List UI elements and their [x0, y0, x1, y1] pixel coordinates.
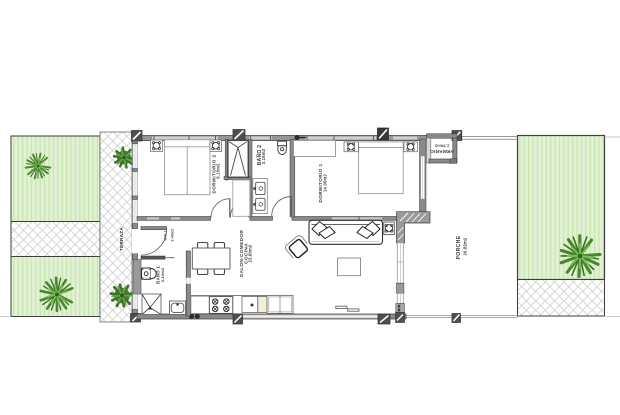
svg-text:HALL: HALL — [164, 229, 168, 240]
svg-text:TERRAZA: TERRAZA — [119, 227, 124, 251]
svg-text:3.16m2: 3.16m2 — [261, 148, 266, 164]
svg-text:PORCHE: PORCHE — [456, 235, 462, 259]
svg-text:2.40m2: 2.40m2 — [171, 229, 175, 242]
svg-text:20.82m2: 20.82m2 — [463, 237, 468, 255]
svg-text:9.10m2: 9.10m2 — [216, 163, 221, 179]
svg-text:3.10m2: 3.10m2 — [160, 267, 165, 282]
svg-text:14.05m2: 14.05m2 — [322, 174, 327, 192]
svg-text:2.50m2: 2.50m2 — [434, 144, 449, 149]
svg-text:23.80m2: 23.80m2 — [248, 244, 253, 262]
